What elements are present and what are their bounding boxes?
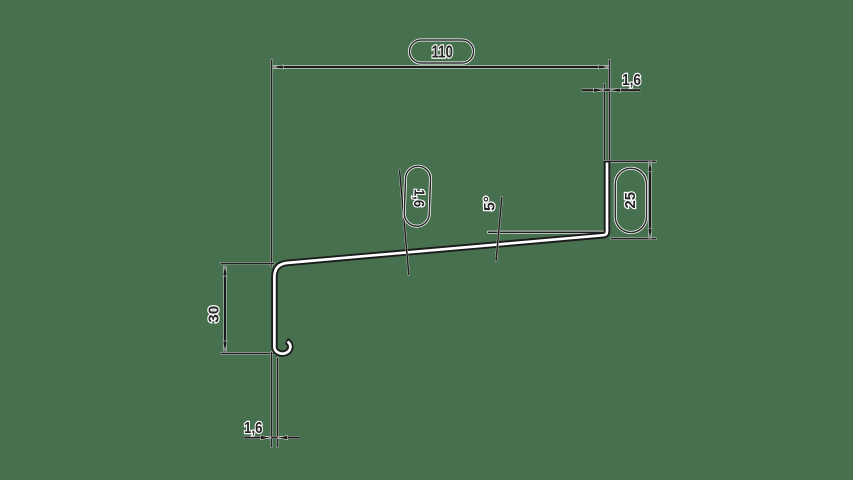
svg-text:25: 25 (622, 192, 639, 209)
svg-text:5°: 5° (481, 196, 499, 212)
svg-text:1,6: 1,6 (622, 72, 641, 89)
svg-text:1,6: 1,6 (410, 189, 427, 208)
svg-text:1,6: 1,6 (244, 420, 263, 437)
svg-text:30: 30 (206, 306, 223, 323)
svg-text:110: 110 (431, 42, 453, 62)
